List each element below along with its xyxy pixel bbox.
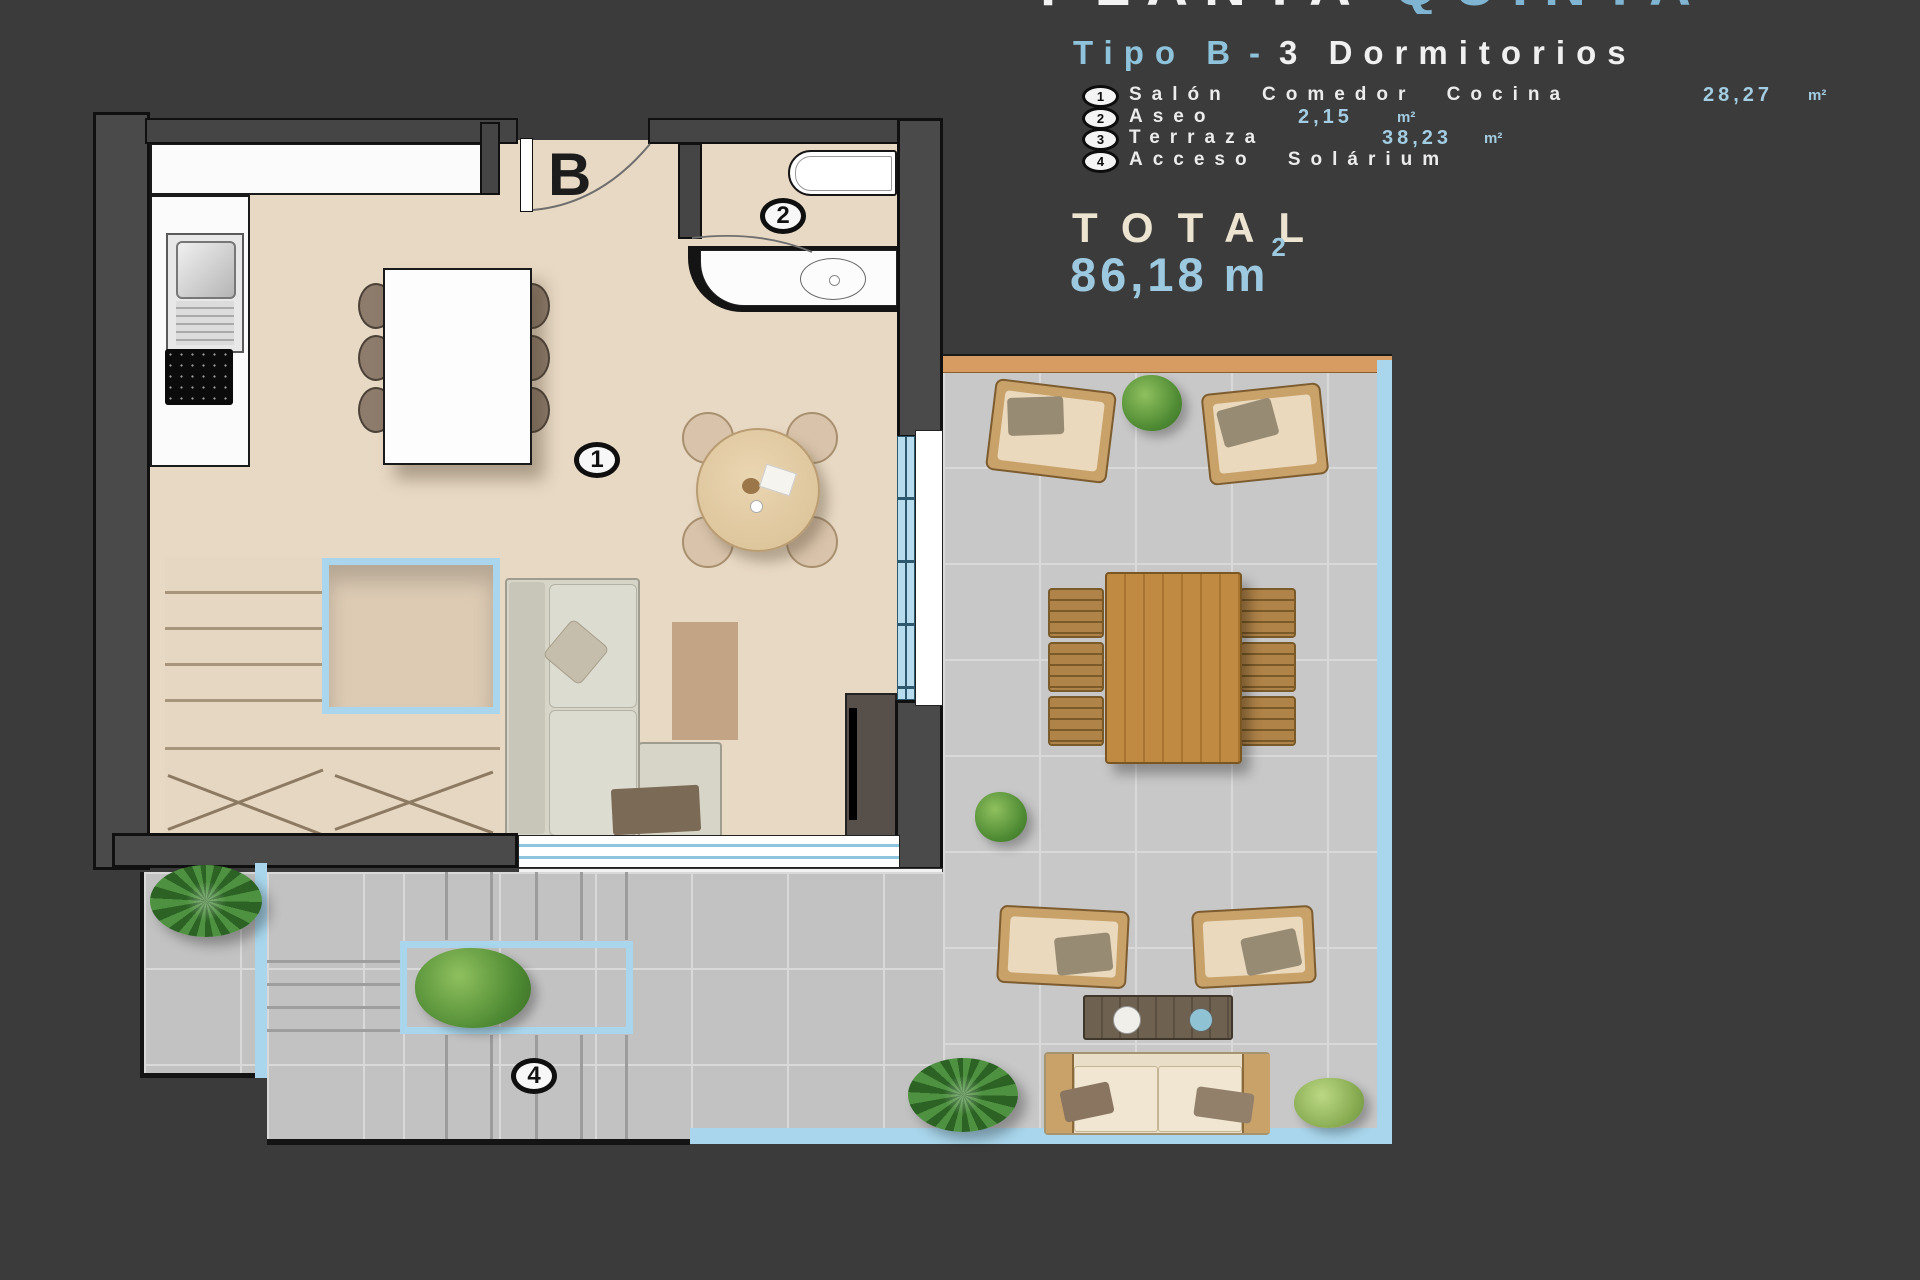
- planter-bush: [415, 948, 531, 1028]
- terrace-chair: [1240, 588, 1296, 638]
- room-legend: 1 Salón Comedor Cocina 28,27 m² 2 Aseo 2…: [1082, 84, 1882, 170]
- palm-plant: [908, 1058, 1018, 1132]
- armchair-pillow: [1054, 932, 1114, 976]
- terrace-armchair: [996, 905, 1130, 990]
- terrace-top-wall-orange: [943, 354, 1392, 373]
- terrace-chair: [1048, 642, 1104, 692]
- terrace-border-right: [1377, 360, 1392, 1143]
- terrace-armchair: [1201, 382, 1330, 486]
- salon-marker: 1: [574, 442, 620, 478]
- total-area-value: 86,18m2: [1070, 247, 1288, 302]
- legend-label: Terraza: [1129, 127, 1265, 149]
- terrace-chair: [1240, 642, 1296, 692]
- exterior-steps-horizontal: [267, 940, 403, 1032]
- coffee-table: [1083, 995, 1233, 1040]
- terrace-armchair: [985, 378, 1117, 484]
- floorplan-page: B: [0, 0, 1920, 1280]
- legend-area-unit: m²: [1808, 87, 1826, 104]
- legend-row-acceso: 4 Acceso Solárium: [1082, 149, 1882, 171]
- legend-4-icon: 4: [1082, 150, 1119, 173]
- terrace-dining-table: [1105, 572, 1242, 764]
- terrace-chair: [1048, 696, 1104, 746]
- palm-plant: [150, 865, 262, 937]
- terrace-chair: [1240, 696, 1296, 746]
- aseo-marker: 2: [760, 198, 806, 234]
- legend-area-value: 2,15: [1298, 106, 1353, 129]
- page-title-clipped: PLANTAQUINTA: [1040, 0, 1840, 14]
- unit-type: Tipo B: [1073, 34, 1241, 71]
- page-title: PLANTAQUINTA: [1040, 0, 1840, 14]
- legend-row-salon: 1 Salón Comedor Cocina 28,27 m²: [1082, 84, 1882, 106]
- subtitle-separator: -: [1249, 34, 1271, 71]
- acceso-marker-number: 4: [527, 1062, 540, 1090]
- legend-area-unit: m²: [1397, 109, 1415, 126]
- bowl-icon: [1189, 1008, 1213, 1032]
- armchair-pillow: [1007, 396, 1064, 436]
- legend-area-value: 38,23: [1382, 127, 1452, 150]
- lower-terrace-mid: [267, 872, 403, 1139]
- total-number: 86,18: [1070, 248, 1208, 301]
- acceso-marker: 4: [511, 1058, 557, 1094]
- terrace-plant-small: [975, 792, 1027, 842]
- legend-label: Salón Comedor Cocina: [1129, 84, 1570, 106]
- legend-area-unit: m²: [1484, 130, 1502, 147]
- terrace-border-bottom: [690, 1128, 1392, 1144]
- legend-row-aseo: 2 Aseo 2,15 m²: [1082, 106, 1882, 128]
- terrace-armchair: [1191, 905, 1317, 989]
- terrace-plant: [1122, 375, 1182, 431]
- legend-row-terraza: 3 Terraza 38,23 m²: [1082, 127, 1882, 149]
- terrace-edge-black: [267, 1139, 690, 1145]
- page-title-quinta: QUINTA: [1393, 0, 1707, 14]
- page-title-planta: PLANTA: [1040, 0, 1367, 14]
- bedroom-count: 3 Dormitorios: [1279, 34, 1637, 71]
- door-b-label: B: [548, 140, 591, 209]
- salon-marker-number: 1: [590, 446, 603, 474]
- total-unit: m: [1224, 248, 1270, 301]
- legend-label: Acceso Solárium: [1129, 149, 1449, 171]
- total-unit-exponent: 2: [1271, 232, 1289, 262]
- exterior-steps-upper: [403, 872, 650, 940]
- aseo-marker-number: 2: [776, 202, 789, 230]
- unit-type-subtitle: Tipo B-3 Dormitorios: [1073, 34, 1637, 72]
- legend-label: Aseo: [1129, 106, 1215, 128]
- plate-icon: [1113, 1006, 1141, 1034]
- terrace-chair: [1048, 588, 1104, 638]
- legend-area-value: 28,27: [1703, 84, 1773, 107]
- terrace-bush: [1294, 1078, 1364, 1128]
